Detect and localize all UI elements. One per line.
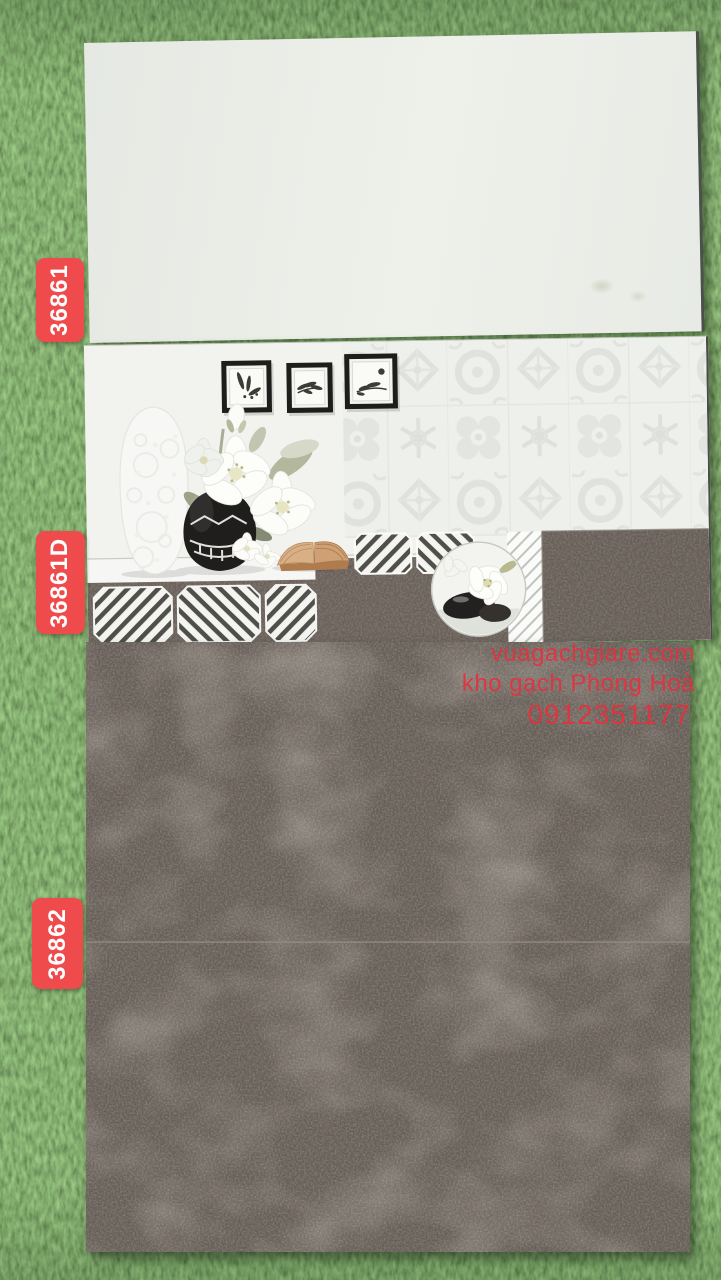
decor-scene bbox=[84, 337, 710, 649]
tile-36862-dark-stone bbox=[86, 642, 690, 1252]
product-code-text: 36861 bbox=[46, 264, 74, 336]
flower-medallion bbox=[431, 541, 526, 636]
stain-mark bbox=[589, 278, 615, 294]
tile-36861d-decor bbox=[84, 336, 712, 649]
stain-mark bbox=[629, 290, 647, 302]
product-code-label-36862: 36862 bbox=[32, 898, 83, 989]
product-code-label-36861d: 36861D bbox=[36, 531, 85, 634]
picture-frame bbox=[286, 362, 335, 416]
stone-texture bbox=[86, 642, 690, 1252]
product-code-text: 36862 bbox=[44, 908, 72, 980]
tile-showroom-photo: vuagachgiare.com kho gạch Phong Hoà 0912… bbox=[0, 0, 721, 1280]
tile-36861-plain-white bbox=[84, 31, 705, 343]
product-code-text: 36861D bbox=[47, 537, 75, 627]
product-code-label-36861: 36861 bbox=[36, 258, 84, 342]
dark-stone-square bbox=[542, 529, 711, 642]
diagonal-stripe-panel bbox=[94, 585, 317, 644]
picture-frame bbox=[344, 353, 400, 412]
tile-seam bbox=[86, 941, 690, 943]
picture-frame bbox=[221, 360, 274, 416]
